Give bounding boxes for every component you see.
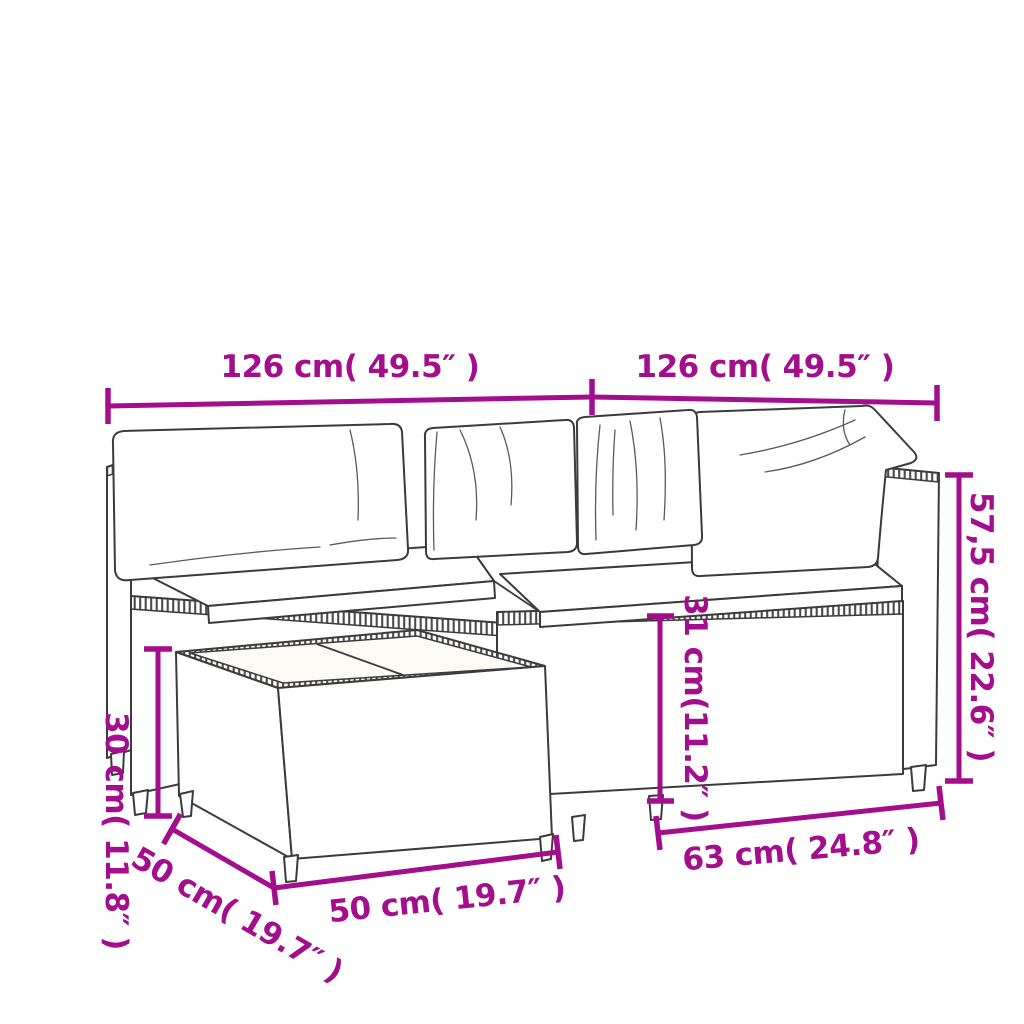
table-leg bbox=[284, 855, 298, 882]
back-cushion-left bbox=[113, 424, 408, 580]
sofa-foot bbox=[572, 815, 585, 841]
dim-label-table-height: 30 cm( 11.8″ ) bbox=[98, 712, 134, 950]
dimension-back-height: 57,5 cm( 22.6″ ) bbox=[945, 475, 999, 781]
dim-tick bbox=[556, 835, 560, 869]
dim-tick bbox=[656, 816, 660, 850]
table-leg bbox=[540, 834, 553, 861]
table-leg bbox=[180, 791, 193, 817]
dim-tick bbox=[272, 871, 276, 905]
back-cushion-corner bbox=[577, 410, 702, 554]
dim-label-top-right: 126 cm( 49.5″ ) bbox=[636, 349, 895, 385]
dimension-top-left-width: 126 cm( 49.5″ ) bbox=[108, 349, 592, 424]
dim-label-top-left: 126 cm( 49.5″ ) bbox=[221, 349, 480, 385]
sofa-foot bbox=[911, 765, 926, 791]
dim-label-back-height: 57,5 cm( 22.6″ ) bbox=[963, 492, 999, 762]
table-front-face bbox=[278, 666, 552, 859]
dim-label-table-depth: 50 cm( 19.7″ ) bbox=[125, 840, 349, 990]
coffee-table bbox=[176, 630, 553, 882]
back-cushion-mid-left bbox=[425, 420, 577, 559]
diagram-canvas: 126 cm( 49.5″ ) 126 cm( 49.5″ ) 57,5 cm(… bbox=[0, 0, 1024, 1024]
dim-tick bbox=[939, 786, 943, 820]
dim-label-right-module-depth: 63 cm( 24.8″ ) bbox=[681, 822, 921, 879]
sofa-line-art bbox=[107, 406, 939, 883]
product-dimension-diagram: 126 cm( 49.5″ ) 126 cm( 49.5″ ) 57,5 cm(… bbox=[0, 0, 1024, 1024]
sofa-foot bbox=[133, 790, 148, 815]
dim-label-seat-height: 31 cm(11.2″ ) bbox=[677, 594, 713, 822]
